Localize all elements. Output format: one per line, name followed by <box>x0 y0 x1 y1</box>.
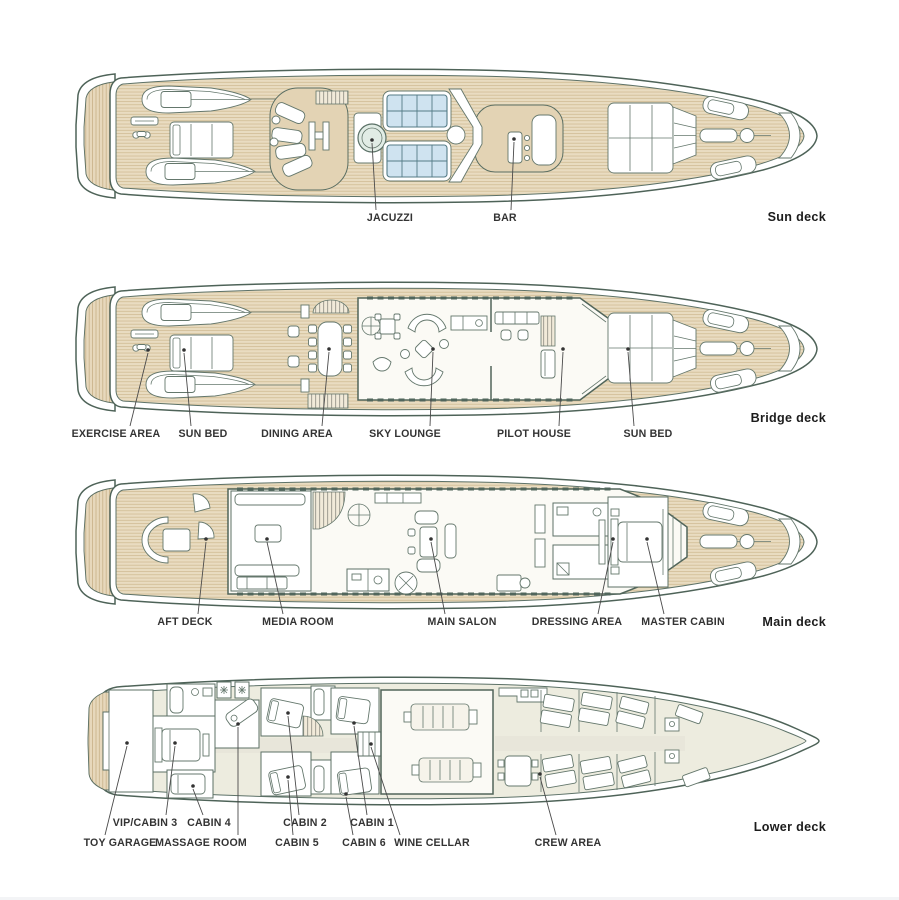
deck-plans-figure: JACUZZI BAR Sun deck EXERCISE AREA SUN B… <box>0 0 899 900</box>
bar-pod <box>475 105 563 172</box>
deck-bridge <box>76 282 817 415</box>
jacuzzi <box>354 113 386 163</box>
yacht-deck-plan-page: JACUZZI BAR Sun deck EXERCISE AREA SUN B… <box>0 0 899 900</box>
toy-garage <box>103 690 153 792</box>
label-cabin1: CABIN 1 <box>350 817 394 829</box>
label-cabin6: CABIN 6 <box>342 837 386 849</box>
label-master-cabin: MASTER CABIN <box>641 616 725 628</box>
label-toy-garage: TOY GARAGE <box>84 837 157 849</box>
cabin6 <box>331 752 379 796</box>
deck-name-sun: Sun deck <box>768 210 827 224</box>
label-exercise-area: EXERCISE AREA <box>72 428 161 440</box>
label-massage-room: MASSAGE ROOM <box>155 837 247 849</box>
label-sun-bed-aft: SUN BED <box>178 428 227 440</box>
sun-lounge-pod <box>270 88 348 190</box>
deck-name-main: Main deck <box>762 615 826 629</box>
engine-room <box>381 690 493 794</box>
label-sky-lounge: SKY LOUNGE <box>369 428 441 440</box>
label-dining-area: DINING AREA <box>261 428 333 440</box>
label-dressing-area: DRESSING AREA <box>532 616 623 628</box>
deck-sun <box>76 69 817 202</box>
deck-main <box>76 475 817 608</box>
engine <box>404 704 477 730</box>
engine <box>412 758 481 782</box>
deck-lower <box>88 677 819 804</box>
cabin5 <box>261 752 311 796</box>
label-cabin5: CABIN 5 <box>275 837 319 849</box>
main-superstructure <box>228 489 687 594</box>
forward-sunpad <box>608 103 673 173</box>
cabin1 <box>331 688 379 734</box>
deck-name-bridge: Bridge deck <box>751 411 827 425</box>
media-room <box>231 491 311 591</box>
label-main-salon: MAIN SALON <box>427 616 496 628</box>
label-cabin4: CABIN 4 <box>187 817 231 829</box>
label-wine-cellar: WINE CELLAR <box>394 837 470 849</box>
label-media-room: MEDIA ROOM <box>262 616 334 628</box>
label-jacuzzi: JACUZZI <box>367 212 413 224</box>
label-cabin2: CABIN 2 <box>283 817 327 829</box>
label-sun-bed-fwd: SUN BED <box>623 428 672 440</box>
label-aft-deck: AFT DECK <box>157 616 212 628</box>
label-crew-area: CREW AREA <box>535 837 602 849</box>
bridge-superstructure <box>358 298 612 400</box>
forward-sunpad <box>608 313 673 383</box>
label-bar: BAR <box>493 212 517 224</box>
cabin4 <box>167 770 213 798</box>
deck-name-lower: Lower deck <box>754 820 827 834</box>
label-pilot-house: PILOT HOUSE <box>497 428 571 440</box>
label-vip-cabin3: VIP/CABIN 3 <box>113 817 178 829</box>
